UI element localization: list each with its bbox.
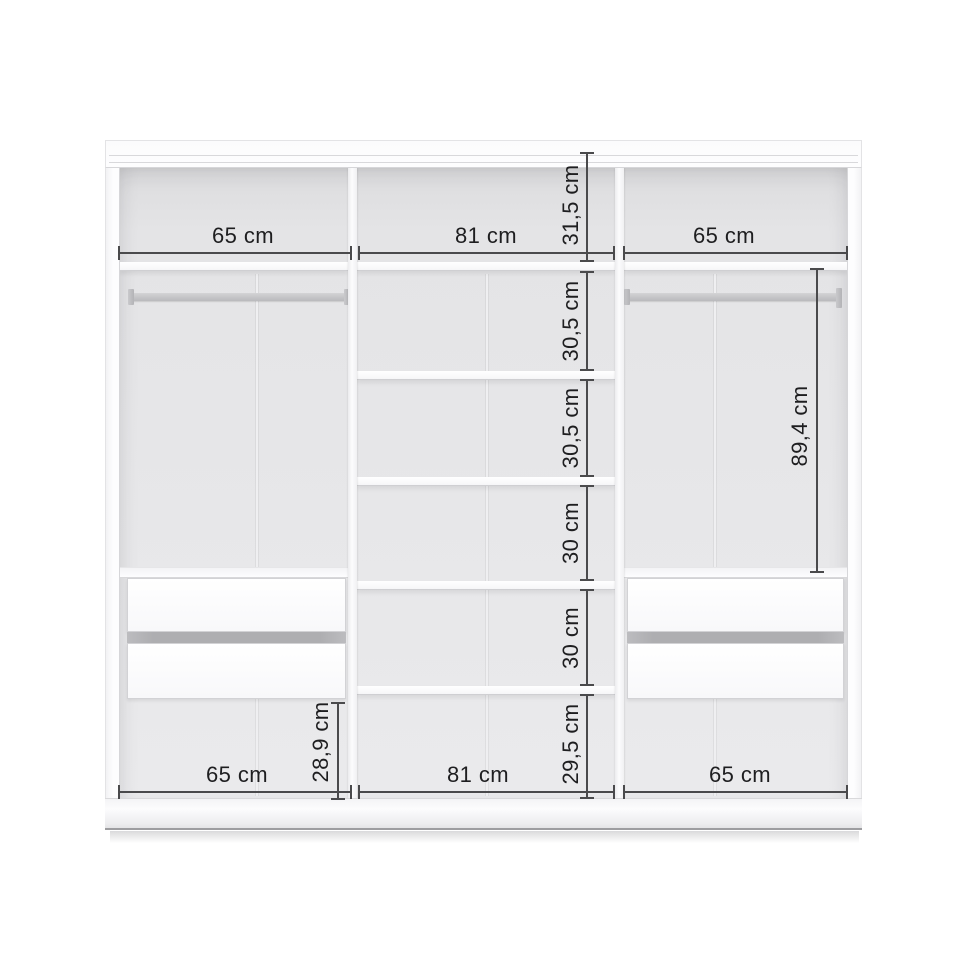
rail-bracket-right-end [836,288,842,308]
wardrobe-top-panel [105,140,862,168]
drawer-unit-top-right [624,567,847,578]
top-shelf-left [120,262,348,271]
back-panel-seam-middle [486,274,488,796]
diagram-canvas: 65 cm 81 cm 65 cm 65 cm 81 cm 65 cm 31,5… [0,0,975,975]
middle-shelf-3 [357,477,615,486]
hanging-rail-left [131,293,349,301]
floor-shadow [110,831,859,843]
drawer-right-lower [627,643,844,699]
back-panel-seam-left [256,274,258,796]
drawer-right-upper [627,578,844,632]
wardrobe-base-panel [105,798,862,830]
wardrobe-side-panel-right [847,140,862,830]
middle-shelf-2 [357,371,615,380]
rail-bracket-right-inner [624,289,630,305]
rail-bracket-left-end [128,289,134,305]
hanging-rail-right [626,293,840,301]
drawer-left-lower [127,643,346,699]
top-shelf-right [624,262,847,271]
divider-right [615,168,624,798]
divider-left [348,168,357,798]
drawer-unit-top-left [120,567,348,578]
top-shelf-middle [357,262,615,271]
top-cornice-lines [109,155,858,163]
drawer-gap-left [127,632,346,643]
middle-shelf-5 [357,686,615,695]
wardrobe-side-panel-left [105,140,120,830]
drawer-gap-right [627,632,844,643]
drawer-left-upper [127,578,346,632]
back-panel-seam-right [714,274,716,796]
middle-shelf-4 [357,581,615,590]
